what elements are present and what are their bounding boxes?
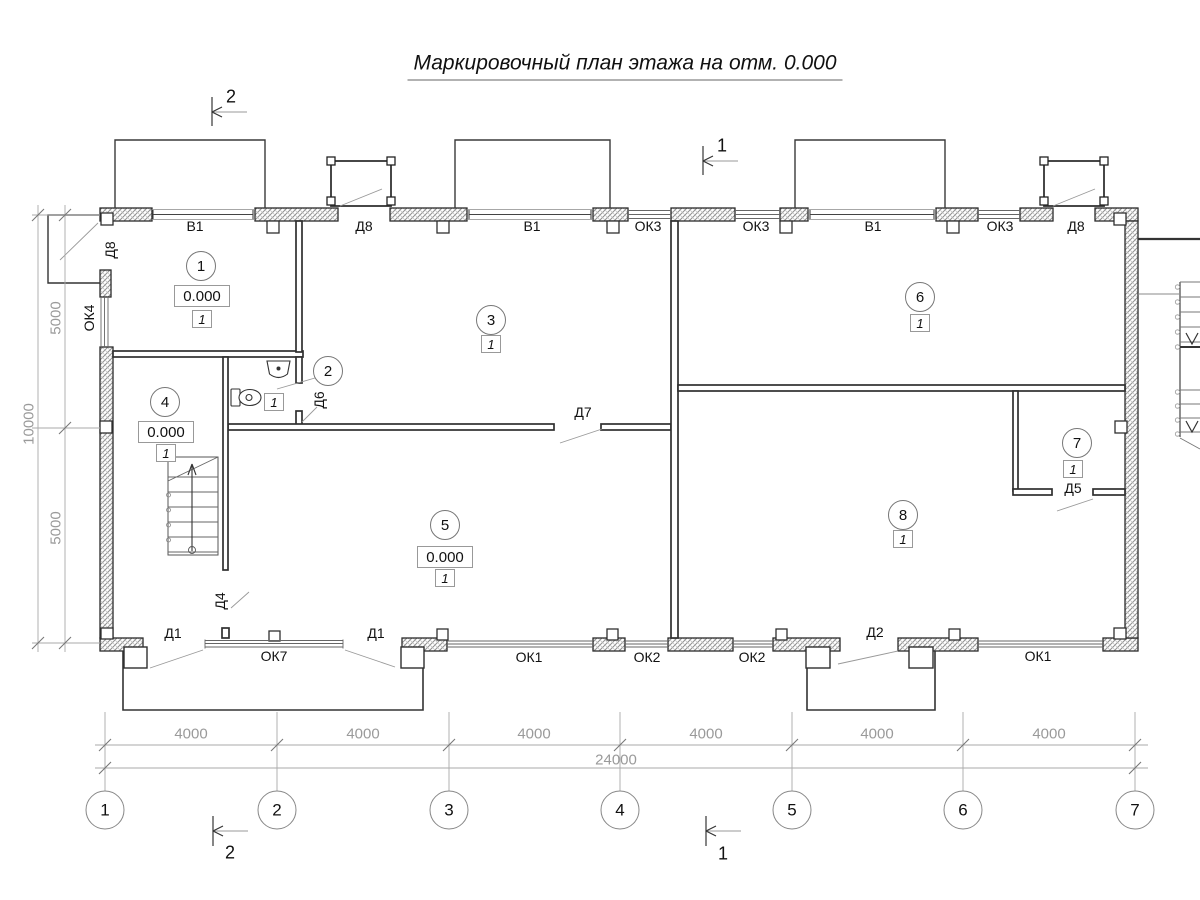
room-circle-4: 4 <box>150 387 180 417</box>
drawing-title: Маркировочный план этажа на отм. 0.000 <box>408 52 843 81</box>
dim-4000-1: 4000 <box>174 726 207 743</box>
dim-5000-bottom: 5000 <box>48 511 65 544</box>
axis-bubble-2: 2 <box>258 791 297 830</box>
room-circle-6: 6 <box>905 282 935 312</box>
room-finish-5: 1 <box>435 569 455 587</box>
section-number-top-right: 1 <box>717 136 727 157</box>
interior-stairs <box>167 457 219 555</box>
opening-label-d5: Д5 <box>1064 480 1081 496</box>
opening-label-d6: Д6 <box>311 391 327 408</box>
opening-label-d2: Д2 <box>866 624 883 640</box>
opening-label-d8-b: Д8 <box>1067 218 1084 234</box>
exterior-stairs <box>1138 239 1200 449</box>
axis-bubble-4: 4 <box>601 791 640 830</box>
room-circle-5: 5 <box>430 510 460 540</box>
opening-label-d8-a: Д8 <box>355 218 372 234</box>
room-finish-1: 1 <box>192 310 212 328</box>
opening-label-ok2-a: ОК2 <box>634 649 661 665</box>
left-dimensions <box>32 205 100 652</box>
room-circle-1: 1 <box>186 251 216 281</box>
opening-label-d1-a: Д1 <box>164 625 181 641</box>
section-number-bottom-right: 1 <box>718 844 728 865</box>
opening-label-d4: Д4 <box>212 592 228 609</box>
toilet-fixture <box>231 389 261 406</box>
opening-label-ok3-b: ОК3 <box>743 218 770 234</box>
section-number-top-left: 2 <box>226 87 236 108</box>
opening-label-ok7: ОК7 <box>261 648 288 664</box>
room-circle-8: 8 <box>888 500 918 530</box>
dim-4000-4: 4000 <box>689 726 722 743</box>
opening-label-ok2-b: ОК2 <box>739 649 766 665</box>
left-porch <box>48 215 100 283</box>
axis-bubble-6: 6 <box>944 791 983 830</box>
canopies <box>115 140 945 208</box>
dim-10000: 10000 <box>21 403 38 445</box>
opening-label-v1-c: В1 <box>864 218 881 234</box>
opening-label-ok4: ОК4 <box>81 305 97 332</box>
dim-5000-top: 5000 <box>48 301 65 334</box>
room-finish-6: 1 <box>910 314 930 332</box>
opening-label-ok1-b: ОК1 <box>1025 648 1052 664</box>
room-finish-7: 1 <box>1063 460 1083 478</box>
opening-label-v1-b: В1 <box>523 218 540 234</box>
opening-label-ok3-c: ОК3 <box>987 218 1014 234</box>
room-finish-8: 1 <box>893 530 913 548</box>
entry-porches-top <box>327 157 1108 206</box>
opening-label-d7: Д7 <box>574 404 591 420</box>
dim-4000-2: 4000 <box>346 726 379 743</box>
opening-label-d1-b: Д1 <box>367 625 384 641</box>
room-finish-3: 1 <box>481 335 501 353</box>
axis-bubble-1: 1 <box>86 791 125 830</box>
room-circle-7: 7 <box>1062 428 1092 458</box>
dim-4000-3: 4000 <box>517 726 550 743</box>
room-elevation-1: 0.000 <box>174 285 230 307</box>
room-circle-3: 3 <box>476 305 506 335</box>
axis-bubble-3: 3 <box>430 791 469 830</box>
room-circle-2: 2 <box>313 356 343 386</box>
dim-4000-6: 4000 <box>1032 726 1065 743</box>
room-elevation-5: 0.000 <box>417 546 473 568</box>
room-finish-4: 1 <box>156 444 176 462</box>
section-number-bottom-left: 2 <box>225 843 235 864</box>
opening-label-v1-a: В1 <box>186 218 203 234</box>
sink-fixture <box>267 361 290 378</box>
opening-label-ok3-a: ОК3 <box>635 218 662 234</box>
floor-plan-page: Маркировочный план этажа на отм. 0.000 В… <box>0 0 1200 900</box>
room-finish-2: 1 <box>264 393 284 411</box>
axis-bubble-7: 7 <box>1116 791 1155 830</box>
room-elevation-4: 0.000 <box>138 421 194 443</box>
dim-4000-5: 4000 <box>860 726 893 743</box>
interior-partitions <box>113 221 1125 638</box>
axis-bubble-5: 5 <box>773 791 812 830</box>
opening-label-ok1-a: ОК1 <box>516 649 543 665</box>
opening-label-d8-left: Д8 <box>102 241 118 258</box>
dim-24000: 24000 <box>595 752 637 769</box>
